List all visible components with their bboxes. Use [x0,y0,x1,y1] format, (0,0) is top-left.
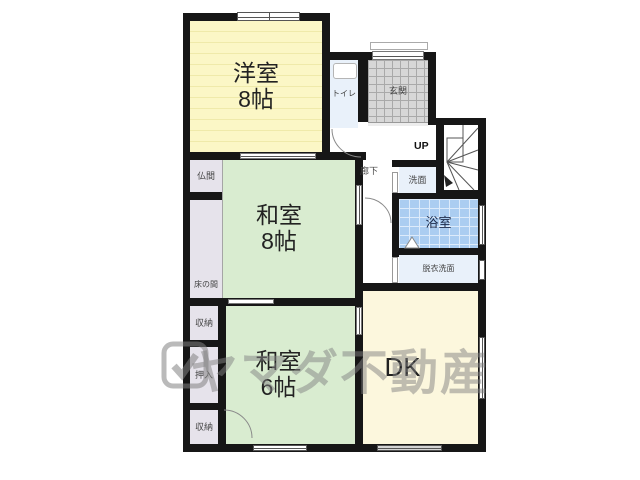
room-entrance-name: 玄関 [389,86,407,96]
room-tokonoma-name: 床の間 [194,281,218,290]
toilet-tank-icon [333,63,357,79]
room-tokonoma: 床の間 [190,200,222,298]
entrance-step-line [368,122,428,126]
room-butsuma-name: 仏間 [197,171,215,181]
window-bath [479,205,485,245]
room-toilet-name: トイレ [332,90,356,99]
window-western-top [237,12,300,21]
entrance-porch-step [370,42,428,50]
wall-dk-top [355,283,478,291]
wall-closet-divider-2 [190,403,218,410]
door-midline [373,56,423,57]
stairs-arrow-icon [444,175,453,187]
window-midline [254,448,306,449]
opening-washstand [392,172,398,193]
opening-dressing [392,257,398,283]
opening-midline [241,156,315,157]
room-storage-bottom-name: 収納 [195,422,213,432]
room-storage-bottom: 収納 [190,410,218,444]
wall-toilet-entrance [358,60,368,122]
room-western-8-size: 8帖 [238,87,274,113]
wall-entrance-right [428,52,436,125]
room-washstand-name: 洗面 [408,175,426,185]
stairs-icon [447,125,478,190]
window-japanese6-bottom [253,445,307,451]
window-dressing [479,260,485,280]
room-dressing: 脱衣洗面 [399,255,478,283]
wall-stairs-left [436,125,444,197]
room-bathroom-name: 浴室 [425,216,451,231]
hallway-label: 廊下 [360,164,378,177]
room-japanese-8: 和室 8帖 [222,160,355,298]
opening-western-japanese8 [240,153,316,159]
opening-japanese8-japanese6 [228,299,274,304]
room-western-8-name: 洋室 [233,61,279,87]
window-midline [482,206,483,244]
stairs-up-label: UP [414,140,429,152]
japanese8-door-arc [365,198,391,223]
room-japanese-8-size: 8帖 [261,229,297,255]
wall-western-right [322,13,330,160]
entrance-door [372,51,424,60]
window-tick [269,13,270,20]
opening-midline [359,308,360,334]
room-dressing-name: 脱衣洗面 [423,265,455,274]
opening-japanese8-hall [356,185,362,225]
wall-bath-bottom [392,248,478,255]
agency-watermark: ヤマダ不動産 [190,333,490,403]
floor-plan: 洋室 8帖 トイレ 玄関 仏間 床の間 和室 8帖 収納 押入 収納 和室 6帖… [0,0,640,480]
wall-stairs-bottom [436,190,478,197]
room-bathroom: 浴室 [399,199,478,248]
wall-butsuma-divider [190,192,222,200]
room-western-8: 洋室 8帖 [190,21,322,152]
room-japanese-8-name: 和室 [256,203,302,229]
window-dk-bottom [377,445,442,451]
room-butsuma: 仏間 [190,160,222,192]
room-entrance: 玄関 [368,60,428,122]
room-washstand: 洗面 [399,167,436,193]
opening-midline [359,186,360,224]
room-storage-top-name: 収納 [195,318,213,328]
opening-japanese6-dk [356,307,362,335]
window-midline [378,448,441,449]
